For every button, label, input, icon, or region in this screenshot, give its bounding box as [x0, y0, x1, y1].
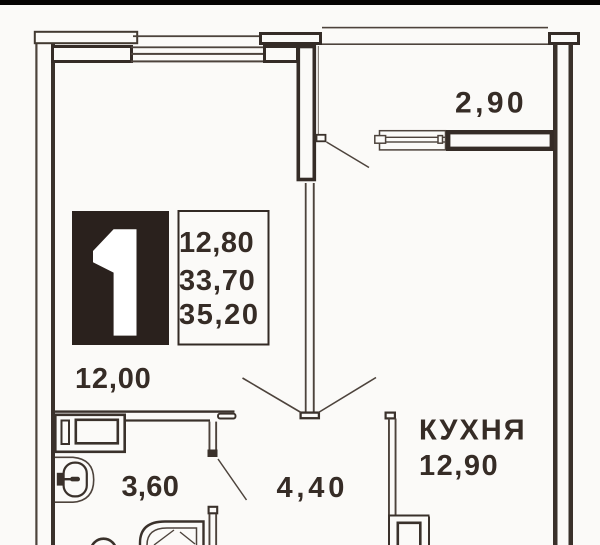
svg-text:12,80: 12,80 — [179, 227, 254, 259]
svg-text:35,20: 35,20 — [179, 299, 260, 331]
svg-text:12,90: 12,90 — [419, 450, 499, 482]
svg-text:4,40: 4,40 — [277, 472, 349, 504]
svg-text:3,60: 3,60 — [122, 471, 180, 503]
svg-text:2,90: 2,90 — [455, 87, 527, 120]
svg-text:КУХНЯ: КУХНЯ — [419, 415, 527, 447]
svg-text:12,00: 12,00 — [75, 363, 152, 395]
svg-text:33,70: 33,70 — [179, 265, 256, 297]
